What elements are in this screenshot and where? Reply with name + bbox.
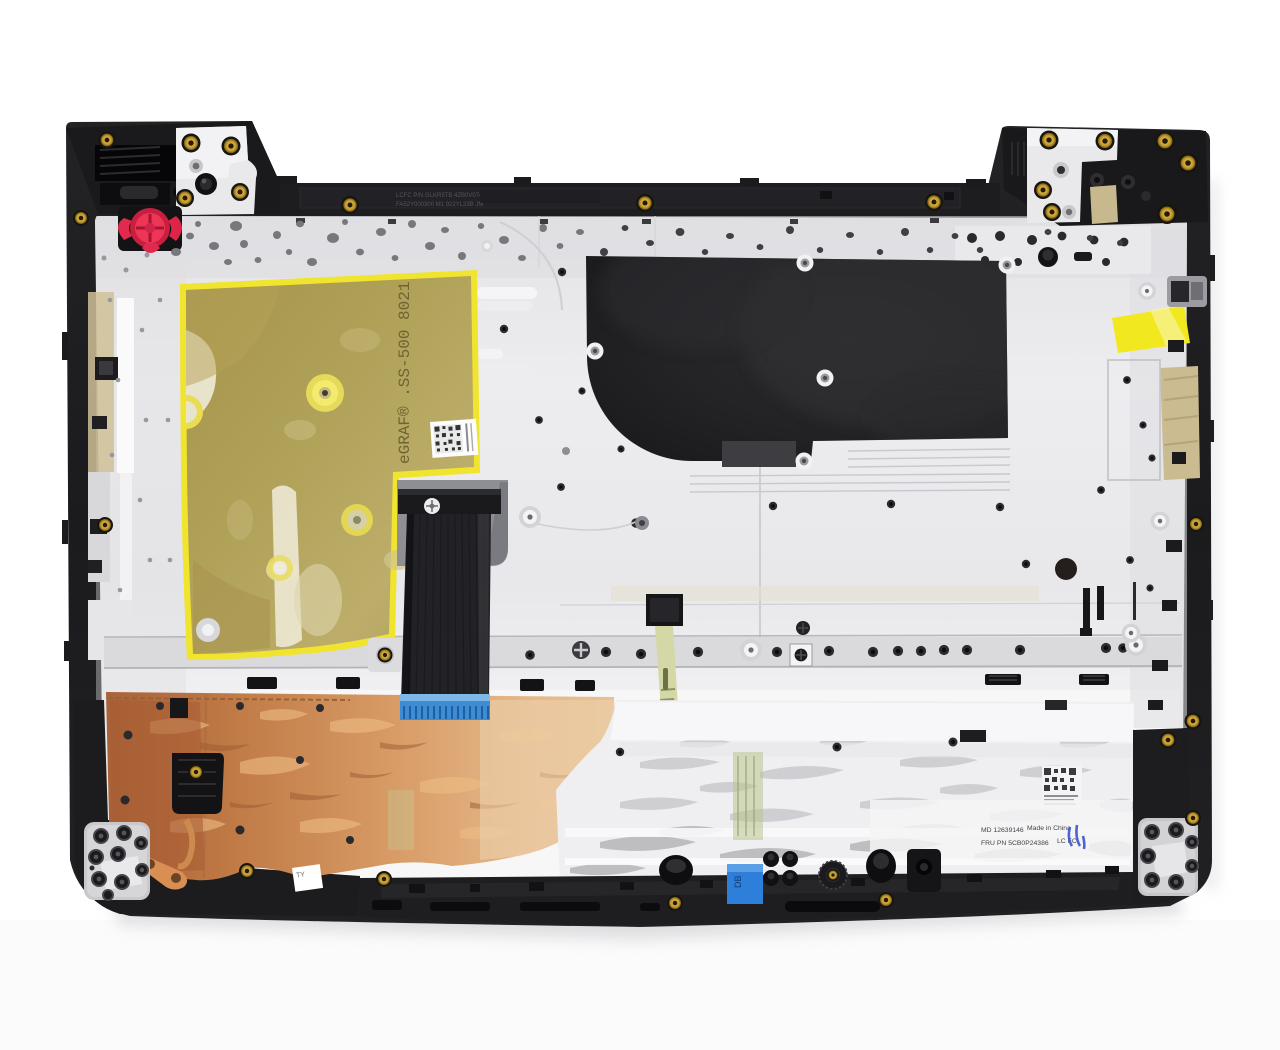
svg-text:MD 12639146: MD 12639146 (981, 827, 1024, 834)
svg-text:Made in China: Made in China (1027, 825, 1071, 832)
svg-text:DB: DB (733, 875, 743, 888)
svg-text:FA52Y000300 M1 922YL23B JM: FA52Y000300 M1 922YL23B JM (396, 202, 483, 208)
svg-text:eGRAF® .SS-500 8021: eGRAF® .SS-500 8021 (396, 282, 414, 464)
svg-text:TY: TY (296, 871, 306, 879)
svg-text:LC FC: LC FC (1057, 838, 1077, 845)
svg-text:FRU PN 5CB0P24386: FRU PN 5CB0P24386 (981, 840, 1049, 847)
